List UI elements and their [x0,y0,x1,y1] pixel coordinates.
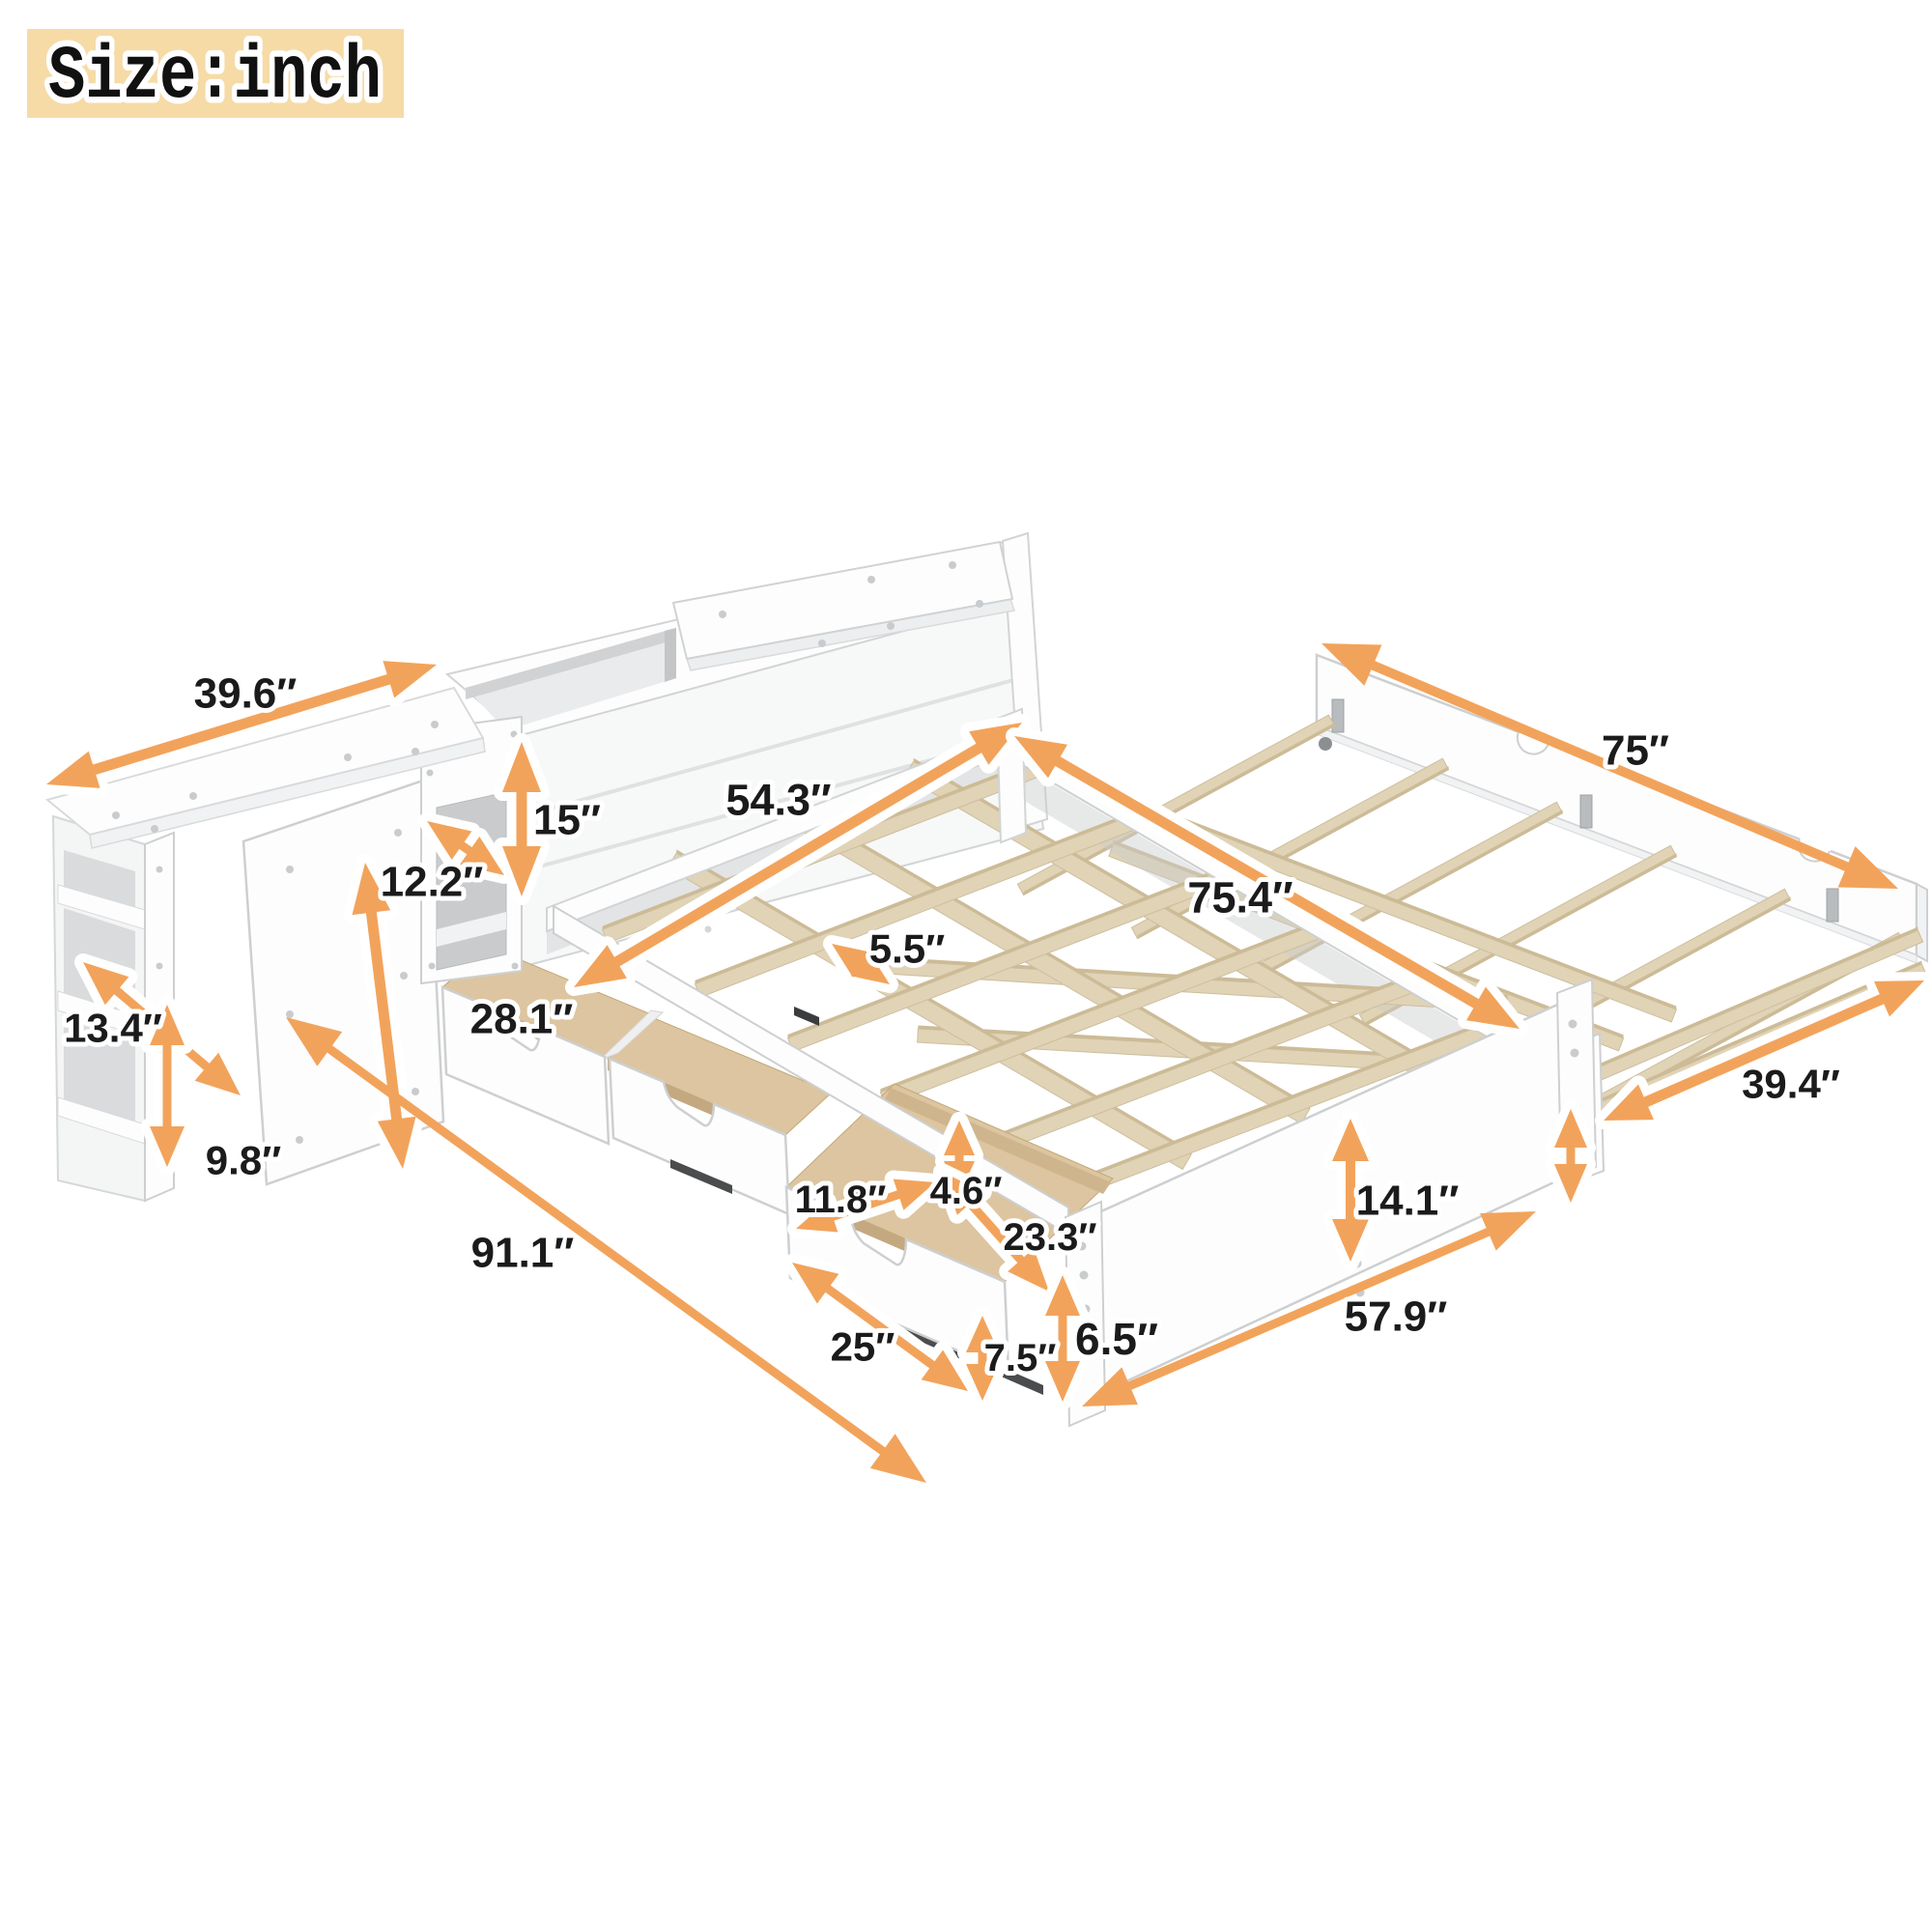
svg-text:4.6″: 4.6″ [930,1170,1003,1212]
svg-text:75.4″: 75.4″ [1187,873,1293,923]
svg-text:11.8″: 11.8″ [795,1179,887,1221]
svg-text:14.1″: 14.1″ [1356,1178,1460,1225]
svg-text:9.8″: 9.8″ [206,1138,282,1183]
svg-text:54.3″: 54.3″ [725,776,831,825]
svg-text:39.4″: 39.4″ [1742,1062,1840,1107]
svg-text:23.3″: 23.3″ [1003,1216,1096,1259]
svg-text:6.5″: 6.5″ [1075,1314,1158,1364]
svg-text:13.4″: 13.4″ [64,1006,162,1051]
svg-text:91.1″: 91.1″ [471,1230,575,1277]
svg-text:15″: 15″ [533,797,601,844]
svg-text:39.6″: 39.6″ [194,670,298,718]
svg-text:Size:inch: Size:inch [48,35,382,120]
svg-text:57.9″: 57.9″ [1345,1293,1448,1341]
svg-text:7.5″: 7.5″ [984,1337,1057,1379]
svg-text:28.1″: 28.1″ [470,996,574,1043]
svg-text:12.2″: 12.2″ [381,859,484,906]
svg-text:75″: 75″ [1602,727,1669,775]
svg-text:25″: 25″ [831,1324,895,1370]
svg-text:5.5″: 5.5″ [869,926,946,972]
